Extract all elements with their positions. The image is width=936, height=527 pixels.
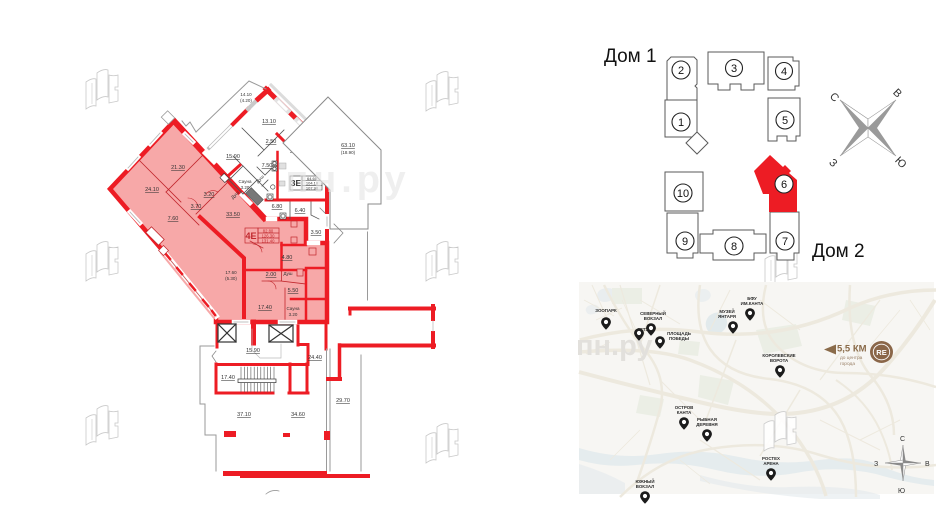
svg-text:ЯНТАРЯ: ЯНТАРЯ (718, 314, 736, 319)
svg-text:13.10: 13.10 (262, 119, 276, 125)
svg-text:10: 10 (677, 188, 689, 200)
svg-text:ЗООПАРК: ЗООПАРК (595, 308, 617, 313)
svg-text:3: 3 (731, 63, 737, 75)
svg-text:1: 1 (678, 117, 684, 129)
svg-text:2.50: 2.50 (266, 139, 277, 145)
svg-text:7.60: 7.60 (168, 216, 179, 222)
svg-text:3.20: 3.20 (241, 185, 250, 190)
svg-text:33.50: 33.50 (226, 212, 240, 218)
svg-text:21.30: 21.30 (171, 165, 185, 171)
svg-text:(4.20): (4.20) (240, 98, 252, 103)
svg-text:6: 6 (781, 179, 787, 191)
svg-text:Сауна: Сауна (287, 306, 300, 311)
svg-text:6.40: 6.40 (295, 208, 306, 214)
svg-text:(5.30): (5.30) (225, 276, 237, 281)
svg-text:до центра: до центра (840, 356, 863, 361)
svg-text:5: 5 (782, 115, 788, 127)
svg-text:6.80: 6.80 (272, 204, 283, 210)
svg-text:Ю: Ю (892, 155, 908, 171)
svg-text:15.90: 15.90 (226, 154, 240, 160)
svg-text:Дом 2: Дом 2 (812, 241, 865, 262)
svg-text:24.40: 24.40 (308, 355, 322, 361)
svg-text:3.70: 3.70 (191, 204, 202, 210)
svg-text:С: С (827, 90, 841, 104)
svg-text:3.20: 3.20 (289, 312, 298, 317)
svg-text:ВОКЗАЛ: ВОКЗАЛ (636, 484, 654, 489)
svg-text:34.60: 34.60 (291, 412, 305, 418)
svg-text:3.20: 3.20 (204, 192, 215, 198)
svg-text:17.40: 17.40 (221, 375, 235, 381)
svg-text:5,5 КМ: 5,5 КМ (837, 344, 867, 355)
svg-text:4.80: 4.80 (282, 255, 293, 261)
svg-text:Дом 1: Дом 1 (604, 46, 657, 67)
svg-text:ВОКЗАЛ: ВОКЗАЛ (644, 316, 662, 321)
svg-text:14.10: 14.10 (240, 92, 252, 97)
svg-text:(18.90): (18.90) (341, 150, 356, 155)
svg-text:В: В (925, 461, 930, 468)
svg-text:29.70: 29.70 (336, 398, 350, 404)
svg-text:131.40: 131.40 (262, 239, 275, 244)
svg-text:З: З (826, 157, 839, 170)
svg-text:2: 2 (678, 65, 684, 77)
svg-text:7: 7 (782, 236, 788, 248)
svg-text:КАНТА: КАНТА (677, 410, 692, 415)
svg-text:В: В (890, 87, 904, 101)
svg-text:ДЕРЕВНЯ: ДЕРЕВНЯ (696, 422, 717, 427)
svg-text:ИМ.КАНТА: ИМ.КАНТА (741, 301, 764, 306)
svg-text:Сауна: Сауна (239, 179, 252, 184)
svg-text:Ю: Ю (898, 488, 905, 495)
svg-text:63.10: 63.10 (341, 143, 355, 149)
svg-text:З: З (874, 461, 878, 468)
svg-text:37.10: 37.10 (237, 412, 251, 418)
svg-text:Душ: Душ (255, 174, 265, 184)
svg-text:3.50: 3.50 (311, 230, 322, 236)
svg-text:Душ: Душ (283, 271, 292, 276)
svg-text:пн.ру: пн.ру (285, 159, 410, 201)
svg-text:7.50: 7.50 (262, 163, 273, 169)
svg-text:ВОРОТА: ВОРОТА (770, 358, 789, 363)
svg-text:КГТУ: КГТУ (638, 327, 649, 332)
svg-text:17.40: 17.40 (258, 305, 272, 311)
svg-text:17.60: 17.60 (225, 270, 237, 275)
svg-text:8: 8 (731, 241, 737, 253)
svg-text:9: 9 (682, 236, 688, 248)
svg-text:2.00: 2.00 (266, 272, 277, 278)
svg-text:АРЕНА: АРЕНА (763, 461, 779, 466)
svg-text:RE: RE (876, 348, 886, 357)
svg-text:24.10: 24.10 (145, 187, 159, 193)
svg-text:15.90: 15.90 (246, 348, 260, 354)
svg-text:С: С (900, 436, 905, 443)
svg-text:города: города (840, 362, 855, 367)
svg-text:ПОБЕДЫ: ПОБЕДЫ (669, 336, 689, 341)
svg-text:4: 4 (781, 66, 787, 78)
svg-text:5.50: 5.50 (288, 288, 299, 294)
svg-text:4Е: 4Е (245, 231, 256, 241)
